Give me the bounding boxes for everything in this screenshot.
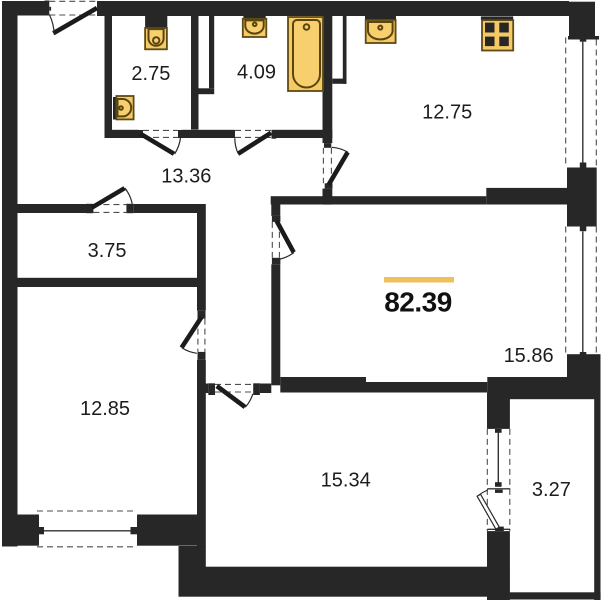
svg-text:12.75: 12.75 <box>422 102 472 124</box>
svg-text:2.75: 2.75 <box>131 63 170 85</box>
svg-text:3.75: 3.75 <box>88 240 127 262</box>
svg-text:82.39: 82.39 <box>384 287 452 318</box>
svg-text:15.86: 15.86 <box>504 345 554 367</box>
svg-text:12.85: 12.85 <box>80 398 130 420</box>
svg-text:13.36: 13.36 <box>161 166 211 188</box>
svg-text:15.34: 15.34 <box>321 469 371 491</box>
svg-text:4.09: 4.09 <box>237 62 276 84</box>
svg-text:3.27: 3.27 <box>532 479 571 501</box>
